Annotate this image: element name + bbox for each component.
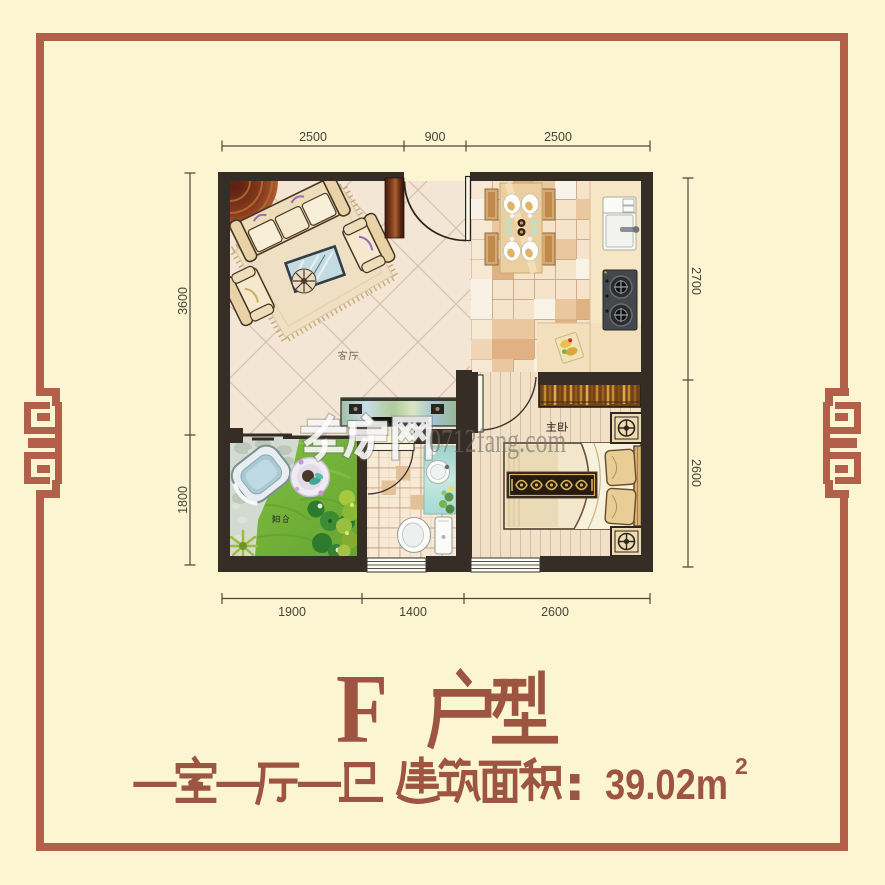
svg-text:2700: 2700	[689, 267, 703, 295]
svg-text:0712fang.com: 0712fang.com	[429, 423, 566, 460]
svg-text:2500: 2500	[299, 130, 327, 144]
svg-text:2500: 2500	[544, 130, 572, 144]
svg-text:3600: 3600	[176, 287, 190, 315]
svg-text:39.02m: 39.02m	[605, 761, 728, 809]
svg-text:2600: 2600	[541, 605, 569, 619]
svg-text:1800: 1800	[176, 486, 190, 514]
svg-text:2600: 2600	[689, 459, 703, 487]
svg-text:1400: 1400	[399, 605, 427, 619]
svg-text:F: F	[336, 655, 388, 764]
svg-text:2: 2	[735, 753, 748, 779]
svg-text:900: 900	[425, 130, 446, 144]
svg-text:1900: 1900	[278, 605, 306, 619]
